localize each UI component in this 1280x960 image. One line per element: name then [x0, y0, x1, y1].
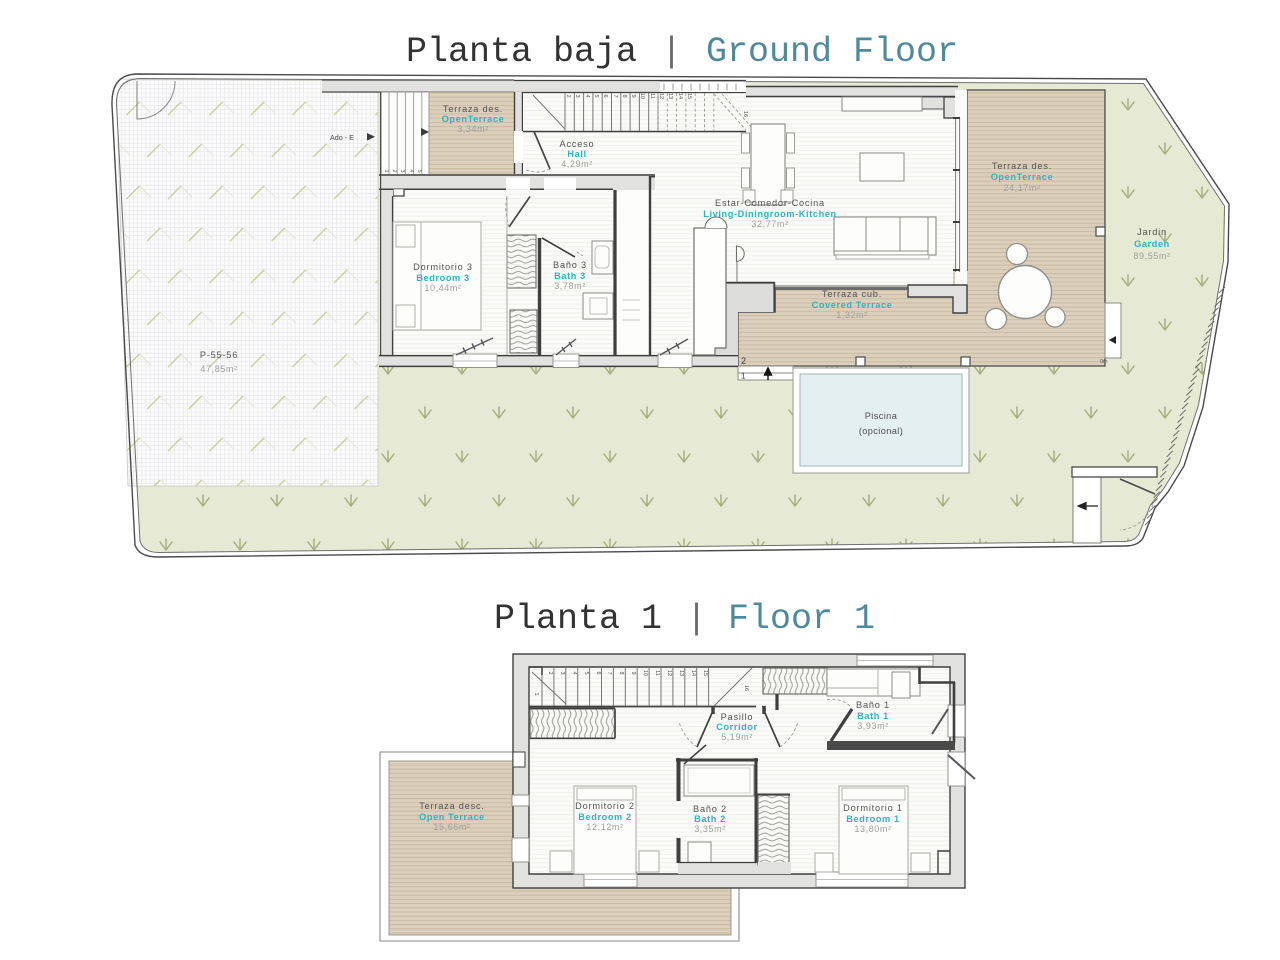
svg-text:0m: 0m	[1100, 359, 1108, 365]
svg-text:7: 7	[606, 671, 612, 674]
svg-text:5: 5	[583, 671, 589, 674]
svg-text:15: 15	[702, 670, 708, 676]
svg-text:Living-Diningroom-Kitchen: Living-Diningroom-Kitchen	[703, 209, 836, 219]
svg-text:2: 2	[741, 356, 746, 366]
svg-text:89,55m²: 89,55m²	[1133, 251, 1170, 261]
svg-text:24,17m²: 24,17m²	[1003, 183, 1040, 193]
svg-text:14: 14	[677, 93, 683, 99]
svg-text:5,19m²: 5,19m²	[721, 732, 753, 742]
svg-text:3,78m²: 3,78m²	[554, 281, 586, 291]
svg-text:5: 5	[593, 94, 599, 97]
svg-text:Dormitorio 3: Dormitorio 3	[413, 262, 473, 272]
svg-text:13,80m²: 13,80m²	[854, 824, 891, 834]
svg-text:32,77m²: 32,77m²	[751, 219, 788, 229]
svg-text:Baño 2: Baño 2	[693, 804, 727, 814]
svg-text:13: 13	[678, 670, 684, 676]
svg-text:14: 14	[690, 670, 696, 676]
svg-text:Covered Terrace: Covered Terrace	[812, 300, 893, 310]
svg-text:15: 15	[686, 93, 692, 99]
svg-text:12: 12	[658, 93, 664, 99]
svg-text:9: 9	[630, 671, 636, 674]
svg-text:|: |	[686, 599, 707, 639]
svg-text:1: 1	[533, 692, 539, 695]
svg-text:|: |	[661, 32, 682, 72]
svg-text:7: 7	[612, 94, 618, 97]
svg-text:OpenTerrace: OpenTerrace	[991, 172, 1054, 182]
svg-text:4: 4	[584, 94, 590, 97]
svg-text:3: 3	[399, 169, 405, 172]
svg-text:Acceso: Acceso	[560, 139, 595, 149]
svg-text:Dormitorio 1: Dormitorio 1	[843, 803, 903, 813]
svg-text:4,29m²: 4,29m²	[561, 159, 593, 169]
svg-text:1,32m²: 1,32m²	[836, 310, 868, 320]
svg-text:Bedroom 3: Bedroom 3	[416, 273, 469, 283]
svg-text:Ado - E: Ado - E	[330, 133, 354, 142]
svg-text:Terraza cub.: Terraza cub.	[822, 289, 882, 299]
svg-text:16: 16	[743, 685, 749, 691]
svg-text:3,35m²: 3,35m²	[694, 824, 726, 834]
svg-text:Jardin: Jardin	[1137, 227, 1167, 237]
svg-text:2: 2	[565, 94, 571, 97]
svg-text:Terraza des.: Terraza des.	[443, 104, 503, 114]
svg-text:3: 3	[574, 94, 580, 97]
svg-text:Pasillo: Pasillo	[721, 712, 754, 722]
svg-text:Ground Floor: Ground Floor	[706, 32, 958, 72]
svg-text:Baño 3: Baño 3	[553, 260, 587, 270]
svg-text:2: 2	[391, 169, 397, 172]
svg-text:2: 2	[547, 671, 553, 674]
svg-text:Bath 2: Bath 2	[694, 814, 726, 824]
svg-text:3,93m²: 3,93m²	[857, 721, 889, 731]
svg-text:Bedroom 1: Bedroom 1	[846, 814, 899, 824]
svg-text:13: 13	[667, 93, 673, 99]
svg-text:3,34m²: 3,34m²	[457, 124, 489, 134]
svg-text:Terraza desc.: Terraza desc.	[419, 801, 485, 811]
svg-text:9: 9	[630, 94, 636, 97]
svg-text:12: 12	[666, 670, 672, 676]
svg-text:Bath 1: Bath 1	[857, 711, 889, 721]
svg-text:Baño 1: Baño 1	[856, 700, 890, 710]
svg-text:10,44m²: 10,44m²	[424, 283, 461, 293]
svg-text:4: 4	[408, 169, 414, 172]
svg-text:6: 6	[595, 671, 601, 674]
svg-text:6: 6	[602, 94, 608, 97]
svg-text:Garden: Garden	[1134, 239, 1170, 249]
svg-text:Hall: Hall	[567, 149, 586, 159]
svg-text:16: 16	[742, 111, 748, 117]
svg-text:10: 10	[642, 670, 648, 676]
svg-text:8: 8	[618, 671, 624, 674]
svg-text:Floor 1: Floor 1	[728, 599, 875, 639]
svg-text:Bedroom 2: Bedroom 2	[578, 812, 631, 822]
svg-text:Planta baja: Planta baja	[406, 32, 637, 72]
svg-text:Planta 1: Planta 1	[494, 599, 662, 639]
svg-text:(opcional): (opcional)	[859, 426, 903, 436]
svg-text:47,85m²: 47,85m²	[200, 364, 237, 374]
svg-text:Open Terrace: Open Terrace	[419, 812, 485, 822]
svg-text:1: 1	[383, 169, 389, 172]
svg-text:15,66m²: 15,66m²	[433, 822, 470, 832]
svg-text:11: 11	[649, 93, 655, 99]
svg-text:3: 3	[559, 671, 565, 674]
svg-text:12,12m²: 12,12m²	[586, 822, 623, 832]
svg-text:Piscina: Piscina	[865, 411, 898, 421]
svg-text:Bath 3: Bath 3	[554, 271, 586, 281]
svg-text:Dormitorio 2: Dormitorio 2	[575, 801, 635, 811]
svg-text:Terraza des.: Terraza des.	[992, 161, 1052, 171]
svg-text:Estar-Comedor-Cocina: Estar-Comedor-Cocina	[715, 198, 825, 208]
svg-text:1: 1	[741, 372, 746, 381]
svg-text:8: 8	[621, 94, 627, 97]
svg-text:11: 11	[654, 670, 660, 676]
svg-text:P-55-56: P-55-56	[200, 350, 238, 360]
svg-text:OpenTerrace: OpenTerrace	[442, 114, 505, 124]
svg-text:10: 10	[639, 93, 645, 99]
svg-text:4: 4	[571, 671, 577, 674]
svg-text:5: 5	[416, 169, 422, 172]
svg-text:Corridor: Corridor	[716, 722, 758, 732]
